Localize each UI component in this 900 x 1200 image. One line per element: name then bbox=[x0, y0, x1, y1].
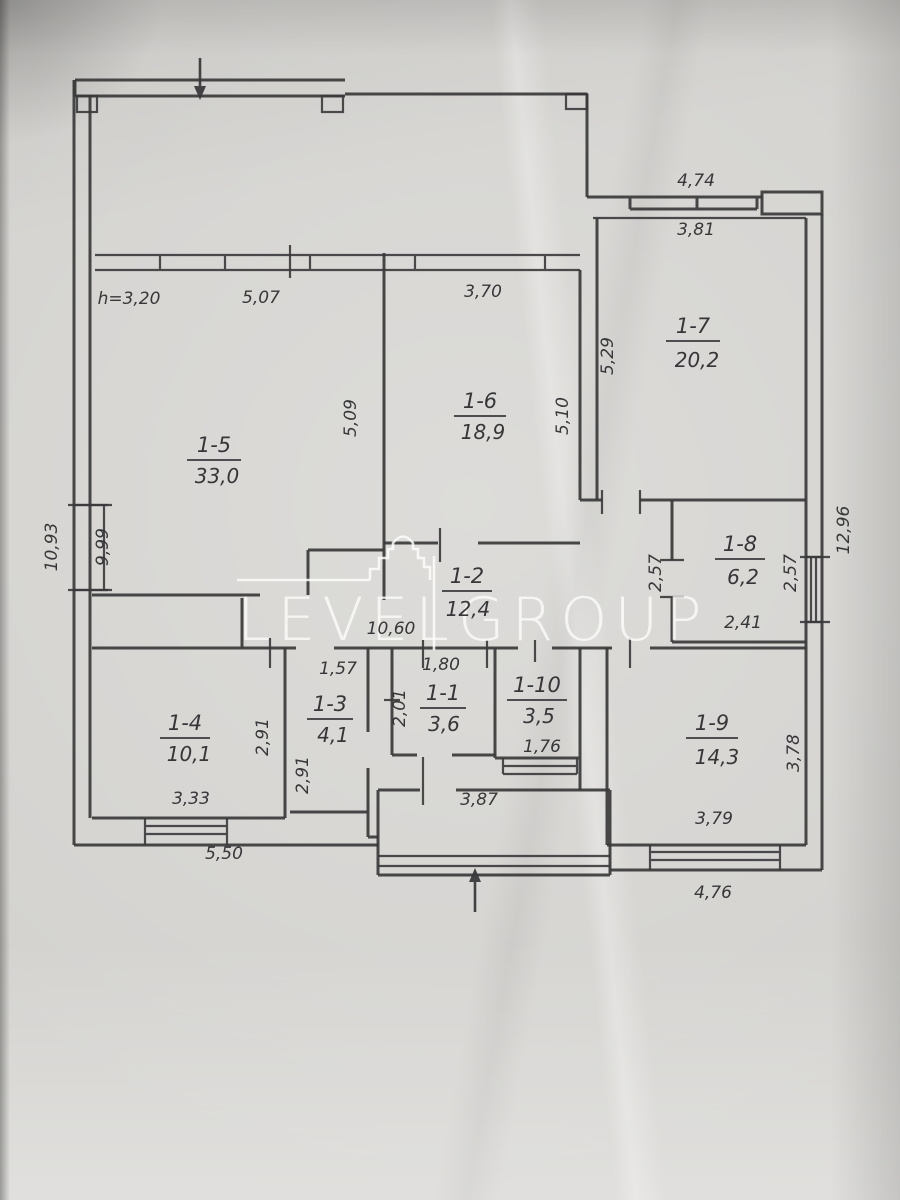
window-1-4 bbox=[145, 818, 227, 845]
dimension-label: 3,33 bbox=[172, 789, 210, 809]
window-1-10 bbox=[503, 758, 577, 774]
room-number: 1-2 bbox=[450, 564, 484, 588]
dimension-label: 5,50 bbox=[205, 844, 243, 864]
dimension-label: 10,93 bbox=[42, 523, 62, 572]
dimension-label: 1,57 bbox=[319, 659, 357, 679]
dimension-label: 2,01 bbox=[390, 689, 410, 727]
room-area: 3,5 bbox=[523, 704, 555, 728]
room-area: 4,1 bbox=[317, 723, 349, 747]
window-top-partition bbox=[95, 255, 580, 270]
dimension-label: 9,99 bbox=[93, 528, 113, 566]
dimension-label: 1,76 bbox=[523, 737, 561, 757]
window-right bbox=[806, 557, 822, 622]
dimension-label: 12,96 bbox=[834, 505, 854, 554]
dimension-label: 2,41 bbox=[724, 613, 762, 633]
room-number: 1-6 bbox=[463, 389, 497, 413]
dimension-label: 2,91 bbox=[293, 756, 313, 794]
dimension-label: 3,79 bbox=[695, 809, 733, 829]
dimension-label: 5,29 bbox=[598, 337, 618, 375]
wall-pilaster bbox=[566, 94, 587, 109]
dimension-label: 2,57 bbox=[646, 554, 666, 592]
dimension-label: 4,76 bbox=[694, 883, 732, 903]
room-area: 10,1 bbox=[167, 742, 212, 766]
dimension-label: 5,10 bbox=[553, 397, 573, 435]
wall-pilaster bbox=[77, 96, 97, 112]
room-number: 1-1 bbox=[426, 681, 460, 705]
dimension-label: 3,70 bbox=[464, 282, 502, 302]
dimension-label: 2,57 bbox=[781, 554, 801, 592]
room-number: 1-8 bbox=[723, 532, 757, 556]
dimension-label: 4,74 bbox=[677, 171, 715, 191]
room-number: 1-4 bbox=[168, 711, 202, 735]
room-area: 33,0 bbox=[195, 464, 240, 488]
dimension-label: 3,87 bbox=[460, 790, 498, 810]
room-area: 6,2 bbox=[727, 565, 759, 589]
dimension-label: 5,07 bbox=[242, 288, 280, 308]
dimension-label: 3,78 bbox=[784, 734, 804, 772]
dimension-label: 1,80 bbox=[422, 655, 460, 675]
room-number: 1-10 bbox=[513, 673, 561, 697]
dimension-label: 5,09 bbox=[341, 399, 361, 437]
dimension-label: h=3,20 bbox=[98, 289, 161, 309]
watermark-group: GROUP bbox=[458, 585, 709, 655]
watermark-level: LEVEL bbox=[237, 585, 456, 655]
room-number: 1-9 bbox=[695, 711, 729, 735]
room-area: 12,4 bbox=[446, 597, 491, 621]
room-area: 18,9 bbox=[461, 420, 506, 444]
floor-plan-photo: LEVEL GROUP 1-533,01-618,91-720,21-86,21… bbox=[0, 0, 900, 1200]
room-area: 14,3 bbox=[695, 745, 740, 769]
room-area: 20,2 bbox=[675, 348, 720, 372]
dimension-label: 10,60 bbox=[367, 619, 416, 639]
wall-corner-pillar bbox=[762, 192, 822, 214]
window-1-9 bbox=[650, 845, 780, 870]
room-number: 1-5 bbox=[197, 433, 231, 457]
room-number: 1-3 bbox=[313, 692, 347, 716]
room-labels: 1-533,01-618,91-720,21-86,21-212,41-410,… bbox=[160, 314, 765, 769]
room-number: 1-7 bbox=[676, 314, 711, 338]
dimension-label: 3,81 bbox=[677, 220, 715, 240]
floor-plan-drawing: LEVEL GROUP 1-533,01-618,91-720,21-86,21… bbox=[0, 0, 900, 1200]
wall-pilaster bbox=[322, 96, 343, 112]
dimension-label: 2,91 bbox=[253, 718, 273, 756]
room-area: 3,6 bbox=[428, 712, 460, 736]
